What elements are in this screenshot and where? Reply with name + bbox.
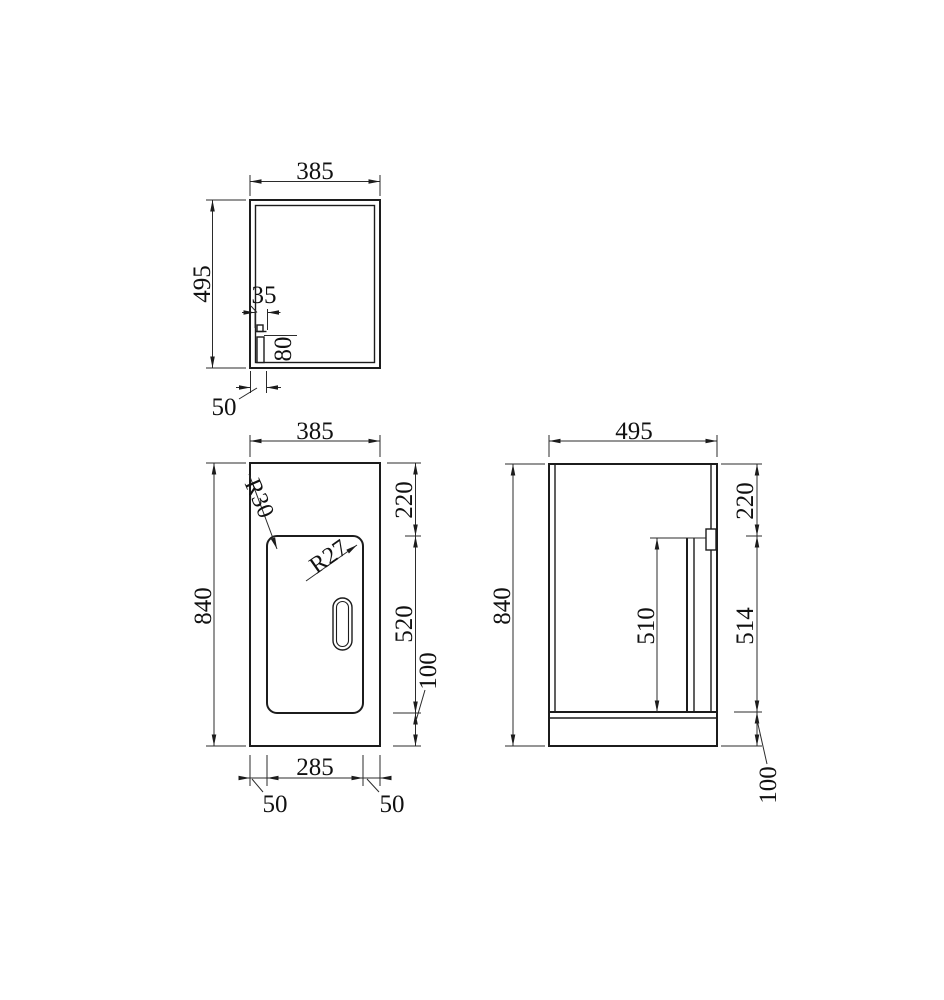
dim-label-front-door-top-gap: 220 (391, 481, 418, 519)
dim-label-front-height: 840 (190, 587, 217, 625)
dim-divider-depth: 80 (264, 336, 297, 362)
dim-label-front-gap-right: 50 (380, 791, 405, 818)
dim-label-divider-depth: 80 (270, 337, 297, 362)
dim-label-side-door-length: 510 (633, 607, 660, 645)
dim-label-front-gap-left: 50 (263, 791, 288, 818)
divider-post (257, 337, 264, 363)
cabinet-dimension-drawing: 385 495 35 80 50 (0, 0, 944, 1000)
dim-label-front-width: 385 (296, 418, 334, 445)
dim-label-side-plinth: 100 (755, 766, 782, 804)
drawing-background (0, 0, 944, 1000)
dim-label-top-depth: 495 (189, 265, 216, 303)
side-view-handle-tab (706, 529, 716, 550)
dim-label-divider-offset: 50 (212, 394, 237, 421)
dim-label-side-door-top-gap: 220 (732, 482, 759, 520)
dim-label-side-depth: 495 (615, 418, 653, 445)
dim-label-side-opening-height: 514 (732, 607, 759, 645)
dim-label-divider-width: 35 (252, 282, 277, 309)
dim-label-side-height: 840 (489, 587, 516, 625)
dim-label-top-width: 385 (296, 158, 334, 185)
dim-label-front-door-width: 285 (296, 754, 334, 781)
dim-label-front-plinth: 100 (415, 652, 442, 690)
dim-label-front-door-height: 520 (391, 605, 418, 643)
divider-hinge-block (257, 325, 263, 332)
technical-drawing-page: 385 495 35 80 50 (0, 0, 944, 1000)
